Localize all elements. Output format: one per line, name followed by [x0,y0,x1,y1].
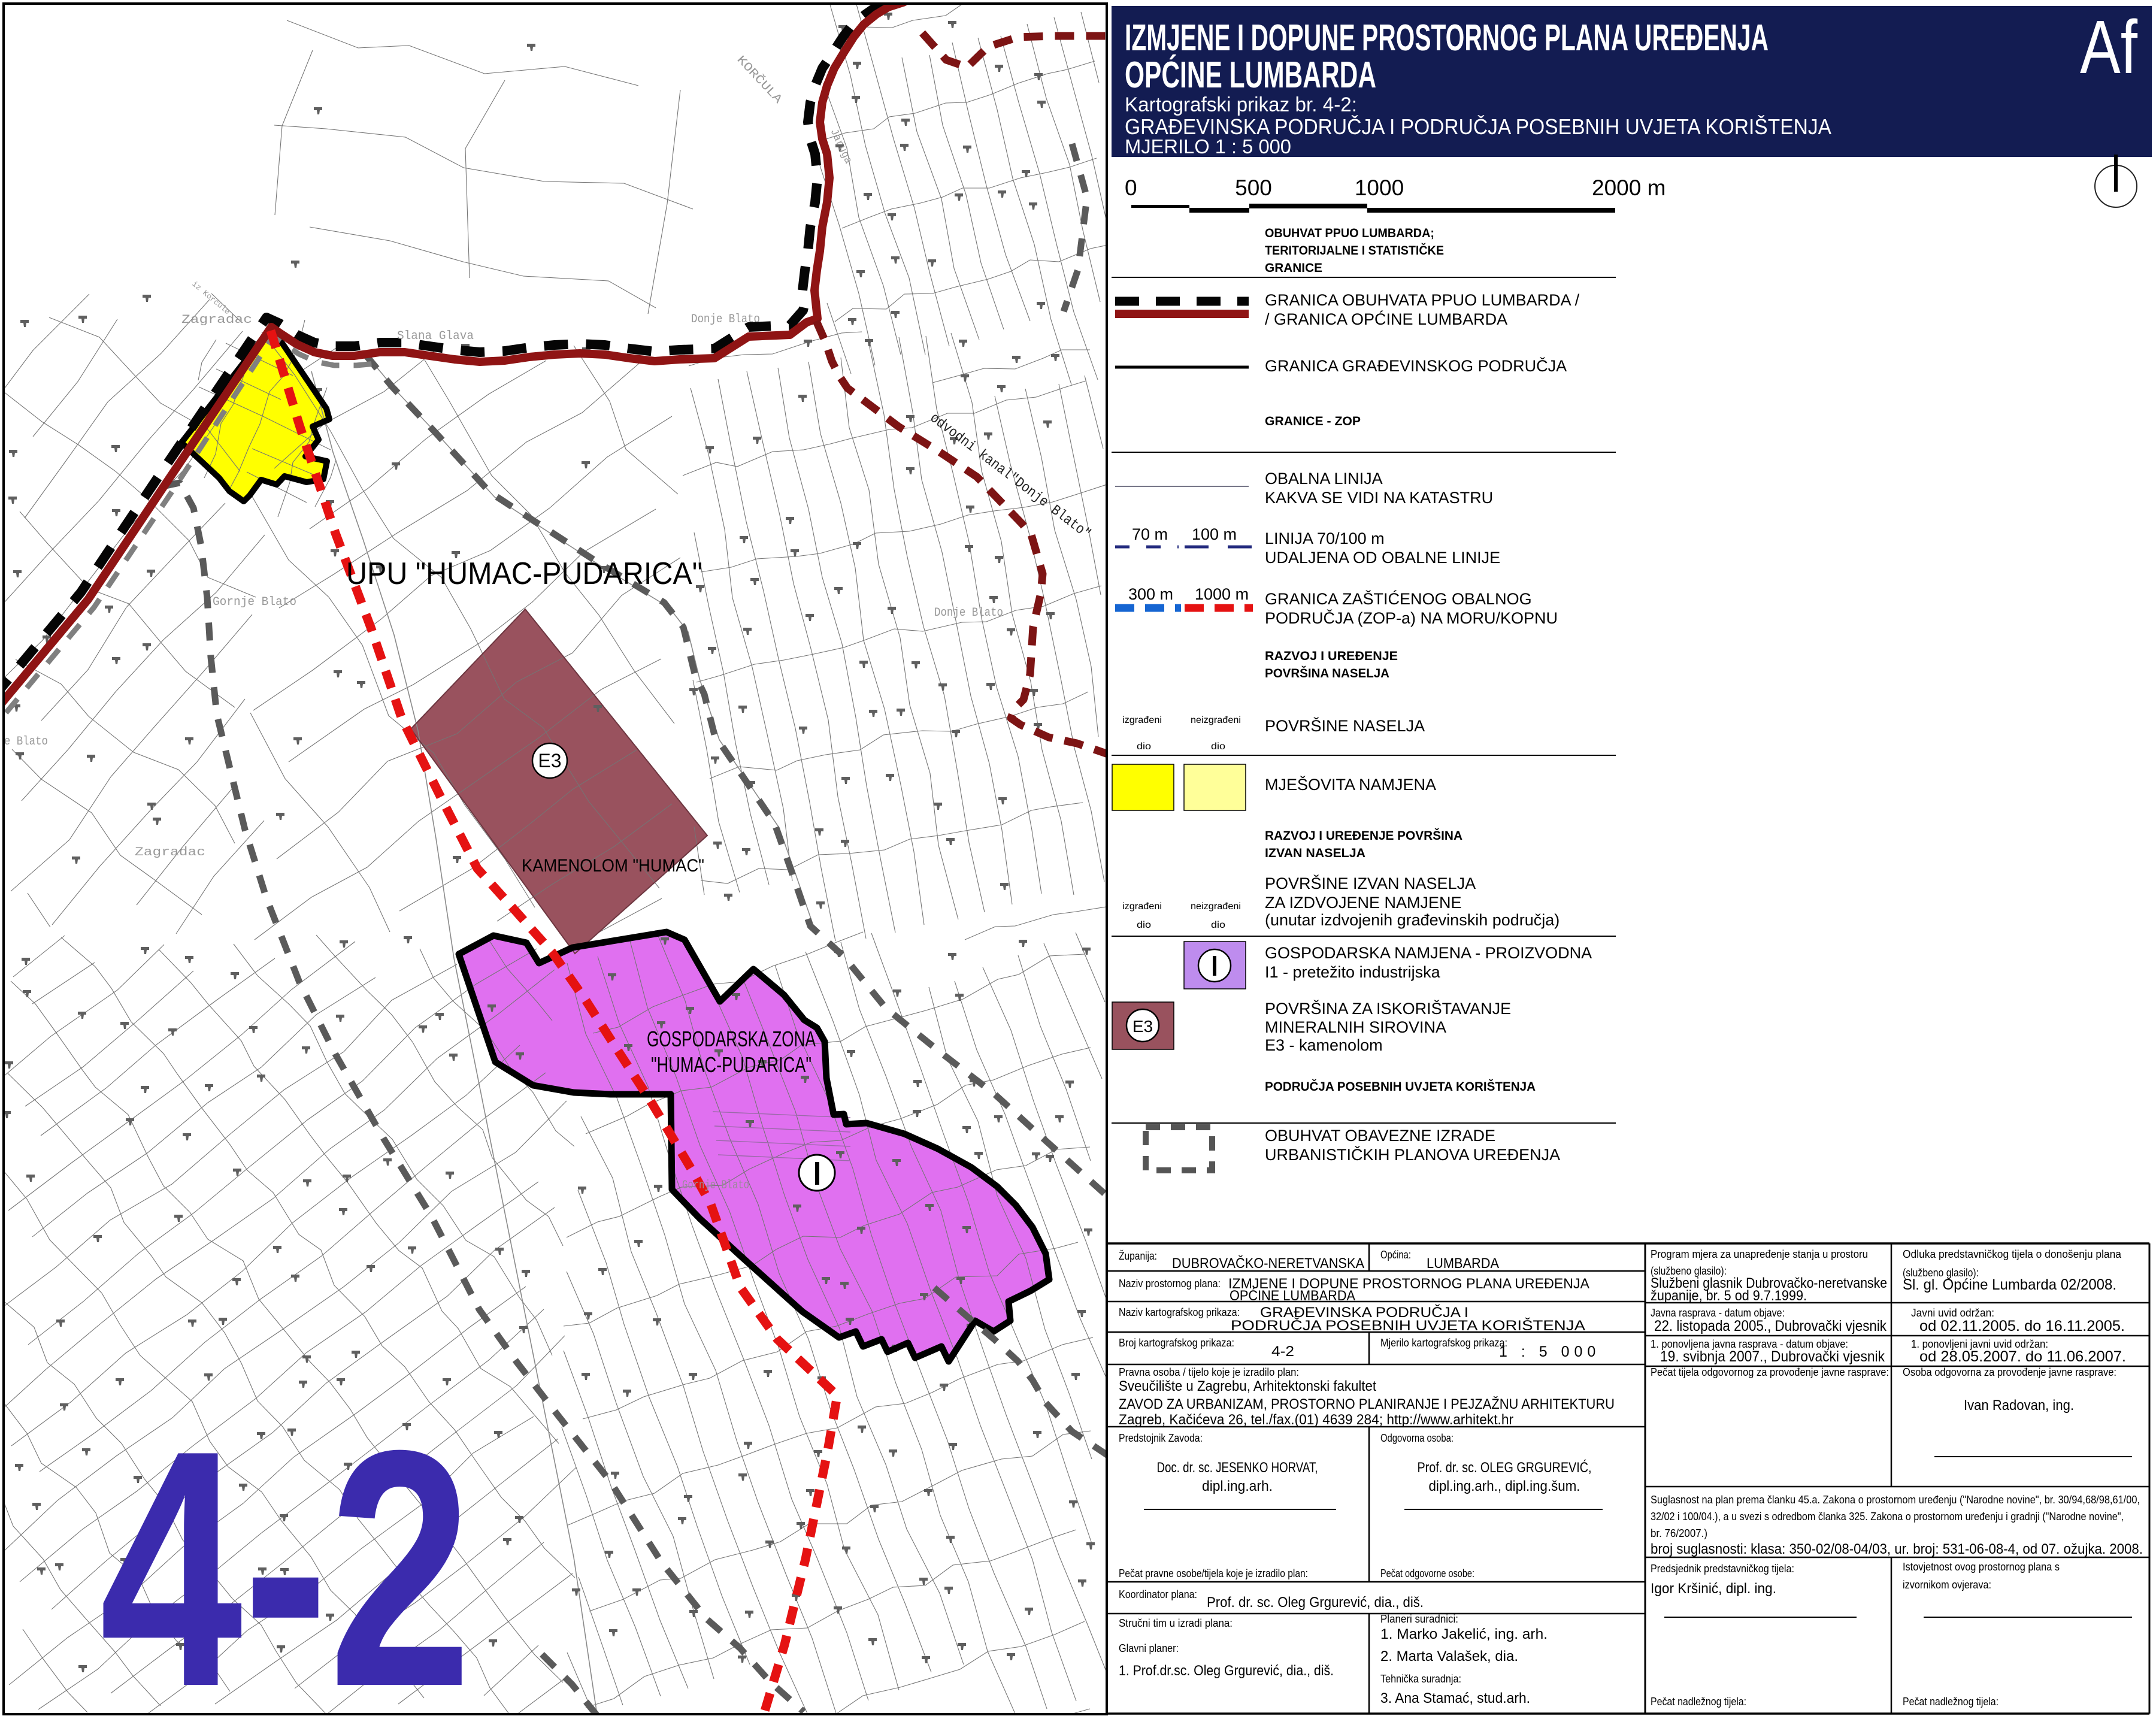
svg-text:Kartografski prikaz br. 4-2:: Kartografski prikaz br. 4-2: [1125,93,1357,116]
svg-text:Ivan Radovan, ing.: Ivan Radovan, ing. [1964,1397,2074,1414]
svg-text:Pečat tijela odgovornog za pro: Pečat tijela odgovornog za provođenje ja… [1651,1366,1889,1378]
svg-text:OPĆINE LUMBARDA: OPĆINE LUMBARDA [1125,55,1376,96]
svg-text:Sl. gl. Općine Lumbarda 02/200: Sl. gl. Općine Lumbarda 02/2008. [1903,1276,2116,1293]
svg-text:dio: dio [1137,920,1151,930]
svg-text:1 : 5 000: 1 : 5 000 [1499,1343,1600,1360]
svg-text:19. svibnja 2007., Dubrovački: 19. svibnja 2007., Dubrovački vjesnik [1660,1348,1885,1365]
svg-text:Javna rasprava - datum objave:: Javna rasprava - datum objave: [1651,1307,1785,1319]
svg-text:Odluka predstavničkog tijela o: Odluka predstavničkog tijela o donošenju… [1903,1248,2122,1260]
svg-text:Planeri suradnici:: Planeri suradnici: [1380,1613,1458,1625]
svg-text:Koordinator plana:: Koordinator plana: [1119,1588,1197,1600]
svg-text:Donje Blato: Donje Blato [0,735,48,749]
svg-text:Pečat odgovorne osobe:: Pečat odgovorne osobe: [1380,1567,1474,1579]
svg-text:Gornje Blato: Gornje Blato [213,595,296,609]
svg-text:POVRŠINA ZA ISKORIŠTAVANJE: POVRŠINA ZA ISKORIŠTAVANJE [1265,999,1511,1018]
svg-text:1000: 1000 [1355,175,1404,200]
svg-text:GRANICE - ZOP: GRANICE - ZOP [1265,414,1361,428]
svg-text:dio: dio [1137,742,1151,752]
svg-text:UDALJENA OD OBALNE LINIJE: UDALJENA OD OBALNE LINIJE [1265,549,1500,567]
svg-text:Zagradac: Zagradac [181,313,252,327]
svg-text:TERITORIJALNE I STATISTIČKE: TERITORIJALNE I STATISTIČKE [1265,243,1444,258]
svg-text:Mjerilo kartografskog prikaza:: Mjerilo kartografskog prikaza: [1380,1337,1507,1349]
svg-text:POVRŠINE NASELJA: POVRŠINE NASELJA [1265,716,1425,735]
svg-text:Igor Kršinić, dipl. ing.: Igor Kršinić, dipl. ing. [1651,1581,1776,1597]
svg-text:Gornje Blato: Gornje Blato [682,1179,749,1193]
svg-text:izgrađeni: izgrađeni [1122,901,1162,912]
svg-text:GRANICA OBUHVATA PPUO LUMBARDA: GRANICA OBUHVATA PPUO LUMBARDA / [1265,291,1580,309]
svg-text:Broj kartografskog prikaza:: Broj kartografskog prikaza: [1119,1337,1234,1349]
svg-text:RAZVOJ I UREĐENJE POVRŠINA: RAZVOJ I UREĐENJE POVRŠINA [1265,828,1462,843]
svg-text:URBANISTIČKIH PLANOVA UREĐENJA: URBANISTIČKIH PLANOVA UREĐENJA [1265,1145,1560,1164]
svg-text:2000 m: 2000 m [1592,175,1666,200]
svg-text:(unutar izdvojenih građevinski: (unutar izdvojenih građevinskih područja… [1265,911,1560,929]
svg-text:Donje Blato: Donje Blato [691,313,760,326]
svg-text:"HUMAC-PUDARICA": "HUMAC-PUDARICA" [651,1052,811,1077]
svg-text:Suglasnost na plan prema člank: Suglasnost na plan prema članku 45.a. Za… [1651,1494,2140,1506]
svg-text:Donje Blato: Donje Blato [934,606,1003,620]
svg-text:Naziv prostornog plana:: Naziv prostornog plana: [1119,1278,1221,1290]
svg-text:Predstojnik Zavoda:: Predstojnik Zavoda: [1119,1432,1203,1444]
svg-text:Predsjednik predstavničkog tij: Predsjednik predstavničkog tijela: [1651,1563,1794,1575]
svg-text:neizgrađeni: neizgrađeni [1191,901,1241,912]
svg-text:Općina:: Općina: [1380,1249,1411,1261]
svg-text:PODRUČJA POSEBNIH UVJETA KORIŠ: PODRUČJA POSEBNIH UVJETA KORIŠTENJA [1231,1317,1585,1334]
svg-text:OBUHVAT PPUO LUMBARDA;: OBUHVAT PPUO LUMBARDA; [1265,226,1434,240]
svg-text:Naziv kartografskog prikaza:: Naziv kartografskog prikaza: [1119,1306,1240,1318]
svg-text:Prof. dr. sc. OLEG GRGUREVIĆ,: Prof. dr. sc. OLEG GRGUREVIĆ, [1418,1460,1592,1476]
svg-text:izvornikom ovjerava:: izvornikom ovjerava: [1903,1579,1991,1591]
svg-text:GRANICA ZAŠTIĆENOG OBALNOG: GRANICA ZAŠTIĆENOG OBALNOG [1265,589,1532,608]
svg-text:70 m: 70 m [1132,525,1168,543]
svg-text:OPĆINE LUMBARDA: OPĆINE LUMBARDA [1230,1288,1355,1304]
svg-text:MJEŠOVITA NAMJENA: MJEŠOVITA NAMJENA [1265,775,1436,794]
svg-text:E3: E3 [538,750,561,771]
svg-text:3. Ana Stamać, stud.arh.: 3. Ana Stamać, stud.arh. [1380,1690,1530,1706]
svg-text:Pečat pravne osobe/tijela koje: Pečat pravne osobe/tijela koje je izradi… [1119,1567,1308,1579]
svg-text:DUBROVAČKO-NERETVANSKA: DUBROVAČKO-NERETVANSKA [1172,1255,1364,1272]
svg-text:E3 - kamenolom: E3 - kamenolom [1265,1036,1383,1054]
svg-text:MINERALNIH SIROVINA: MINERALNIH SIROVINA [1265,1018,1446,1036]
svg-text:Javni uvid održan:: Javni uvid održan: [1911,1307,1994,1319]
svg-text:2. Marta Valašek, dia.: 2. Marta Valašek, dia. [1380,1648,1518,1664]
svg-text:Pečat nadležnog tijela:: Pečat nadležnog tijela: [1903,1696,1998,1708]
svg-text:I1 - pretežito industrijska: I1 - pretežito industrijska [1265,963,1441,981]
svg-text:ZA IZDVOJENE NAMJENE: ZA IZDVOJENE NAMJENE [1265,894,1462,912]
svg-text:ZAVOD ZA URBANIZAM, PROSTORNO: ZAVOD ZA URBANIZAM, PROSTORNO PLANIRANJE… [1119,1396,1615,1412]
svg-text:broj suglasnosti: klasa: 350-0: broj suglasnosti: klasa: 350-02/08-04/03… [1651,1541,2143,1557]
svg-text:RAZVOJ I UREĐENJE: RAZVOJ I UREĐENJE [1265,649,1398,663]
svg-text:Doc. dr. sc. JESENKO HORVAT,: Doc. dr. sc. JESENKO HORVAT, [1157,1460,1318,1476]
svg-text:LUMBARDA: LUMBARDA [1427,1255,1499,1272]
svg-text:br. 76/2007.): br. 76/2007.) [1651,1527,1707,1539]
svg-text:MJERILO 1 : 5 000: MJERILO 1 : 5 000 [1125,135,1291,158]
svg-text:PODRUČJA (ZOP-a) NA MORU/KOPNU: PODRUČJA (ZOP-a) NA MORU/KOPNU [1265,609,1558,627]
svg-text:300 m: 300 m [1128,585,1173,603]
svg-text:Pravna osoba / tijelo koje je: Pravna osoba / tijelo koje je izradilo p… [1119,1366,1299,1378]
svg-text:Af: Af [2080,5,2138,89]
svg-text:KAKVA SE VIDI NA KATASTRU: KAKVA SE VIDI NA KATASTRU [1265,489,1493,507]
svg-text:LINIJA 70/100 m: LINIJA 70/100 m [1265,529,1385,547]
svg-text:POVRŠINE IZVAN NASELJA: POVRŠINE IZVAN NASELJA [1265,874,1476,892]
svg-text:županije, br. 5 od 9.7.1999.: županije, br. 5 od 9.7.1999. [1651,1288,1807,1304]
svg-text:od 28.05.2007. do 11.06.2007.: od 28.05.2007. do 11.06.2007. [1919,1348,2126,1365]
svg-text:GOSPODARSKA ZONA: GOSPODARSKA ZONA [647,1027,816,1051]
svg-text:OBALNA LINIJA: OBALNA LINIJA [1265,470,1383,488]
svg-text:GRANICE: GRANICE [1265,261,1322,275]
svg-text:izgrađeni: izgrađeni [1122,715,1162,725]
svg-text:POVRŠINA NASELJA: POVRŠINA NASELJA [1265,666,1389,680]
svg-text:IZVAN NASELJA: IZVAN NASELJA [1265,846,1365,860]
svg-text:GOSPODARSKA NAMJENA - PROIZVOD: GOSPODARSKA NAMJENA - PROIZVODNA [1265,944,1592,962]
svg-text:UPU "HUMAC-PUDARICA": UPU "HUMAC-PUDARICA" [346,556,702,591]
svg-text:dipl.ing.arh.: dipl.ing.arh. [1202,1478,1273,1494]
svg-text:dio: dio [1211,742,1225,752]
svg-text:1. Prof.dr.sc. Oleg Grgurević,: 1. Prof.dr.sc. Oleg Grgurević, dia., diš… [1119,1663,1334,1679]
svg-text:Odgovorna osoba:: Odgovorna osoba: [1380,1432,1454,1444]
svg-text:IZMJENE I DOPUNE PROSTORNOG PL: IZMJENE I DOPUNE PROSTORNOG PLANA UREĐEN… [1125,17,1769,59]
svg-text:PODRUČJA POSEBNIH UVJETA KORIŠ: PODRUČJA POSEBNIH UVJETA KORIŠTENJA [1265,1079,1536,1094]
svg-text:OBUHVAT OBAVEZNE IZRADE: OBUHVAT OBAVEZNE IZRADE [1265,1127,1495,1145]
svg-text:Slana Glava: Slana Glava [397,329,474,343]
svg-text:Sveučilište u Zagrebu, Arhitek: Sveučilište u Zagrebu, Arhitektonski fak… [1119,1378,1376,1394]
svg-text:100 m: 100 m [1192,525,1237,543]
svg-text:22. listopada 2005., Dubrovačk: 22. listopada 2005., Dubrovački vjesnik [1654,1318,1886,1334]
svg-text:500: 500 [1235,175,1272,200]
svg-text:GRANICA GRAĐEVINSKOG PODRUČJA: GRANICA GRAĐEVINSKOG PODRUČJA [1265,356,1567,375]
svg-text:Prof. dr. sc. Oleg Grgurević,: Prof. dr. sc. Oleg Grgurević, dia., diš. [1207,1594,1424,1611]
svg-text:Glavni planer:: Glavni planer: [1119,1642,1179,1654]
svg-text:Istovjetnost ovog prostornog p: Istovjetnost ovog prostornog plana s [1903,1561,2060,1573]
svg-text:Zagradac: Zagradac [135,846,205,859]
svg-text:Stručni tim u izradi plana:: Stručni tim u izradi plana: [1119,1617,1233,1629]
svg-text:/ GRANICA OPĆINE LUMBARDA: / GRANICA OPĆINE LUMBARDA [1265,310,1507,328]
svg-text:KAMENOLOM "HUMAC": KAMENOLOM "HUMAC" [522,856,704,876]
svg-text:E3: E3 [1132,1017,1153,1036]
svg-text:neizgrađeni: neizgrađeni [1191,715,1241,725]
svg-text:32/02 i 100/04.), a u svezi s: 32/02 i 100/04.), a u svezi s odredbom č… [1651,1511,2124,1523]
svg-text:dipl.ing.arh., dipl.ing.šum.: dipl.ing.arh., dipl.ing.šum. [1429,1478,1580,1494]
svg-text:1000 m: 1000 m [1195,585,1249,603]
svg-text:Program mjera za unapređenje s: Program mjera za unapređenje stanja u pr… [1651,1248,1868,1260]
svg-text:4-2: 4-2 [99,1381,472,1719]
svg-text:Zagreb, Kačićeva 26, tel./fax.: Zagreb, Kačićeva 26, tel./fax.(01) 4639 … [1119,1412,1513,1428]
svg-text:Županija:: Županija: [1119,1250,1157,1262]
svg-text:dio: dio [1211,920,1225,930]
svg-text:0: 0 [1125,175,1137,200]
svg-text:Osoba odgovorna za provođenje: Osoba odgovorna za provođenje javne rasp… [1903,1366,2116,1378]
svg-text:Tehnička suradnja:: Tehnička suradnja: [1380,1673,1461,1685]
svg-text:Pečat nadležnog tijela:: Pečat nadležnog tijela: [1651,1696,1746,1708]
svg-text:1. Marko Jakelić, ing. arh.: 1. Marko Jakelić, ing. arh. [1380,1626,1548,1642]
svg-text:4-2: 4-2 [1271,1343,1294,1360]
svg-text:od 02.11.2005. do 16.11.2005.: od 02.11.2005. do 16.11.2005. [1919,1318,2125,1334]
